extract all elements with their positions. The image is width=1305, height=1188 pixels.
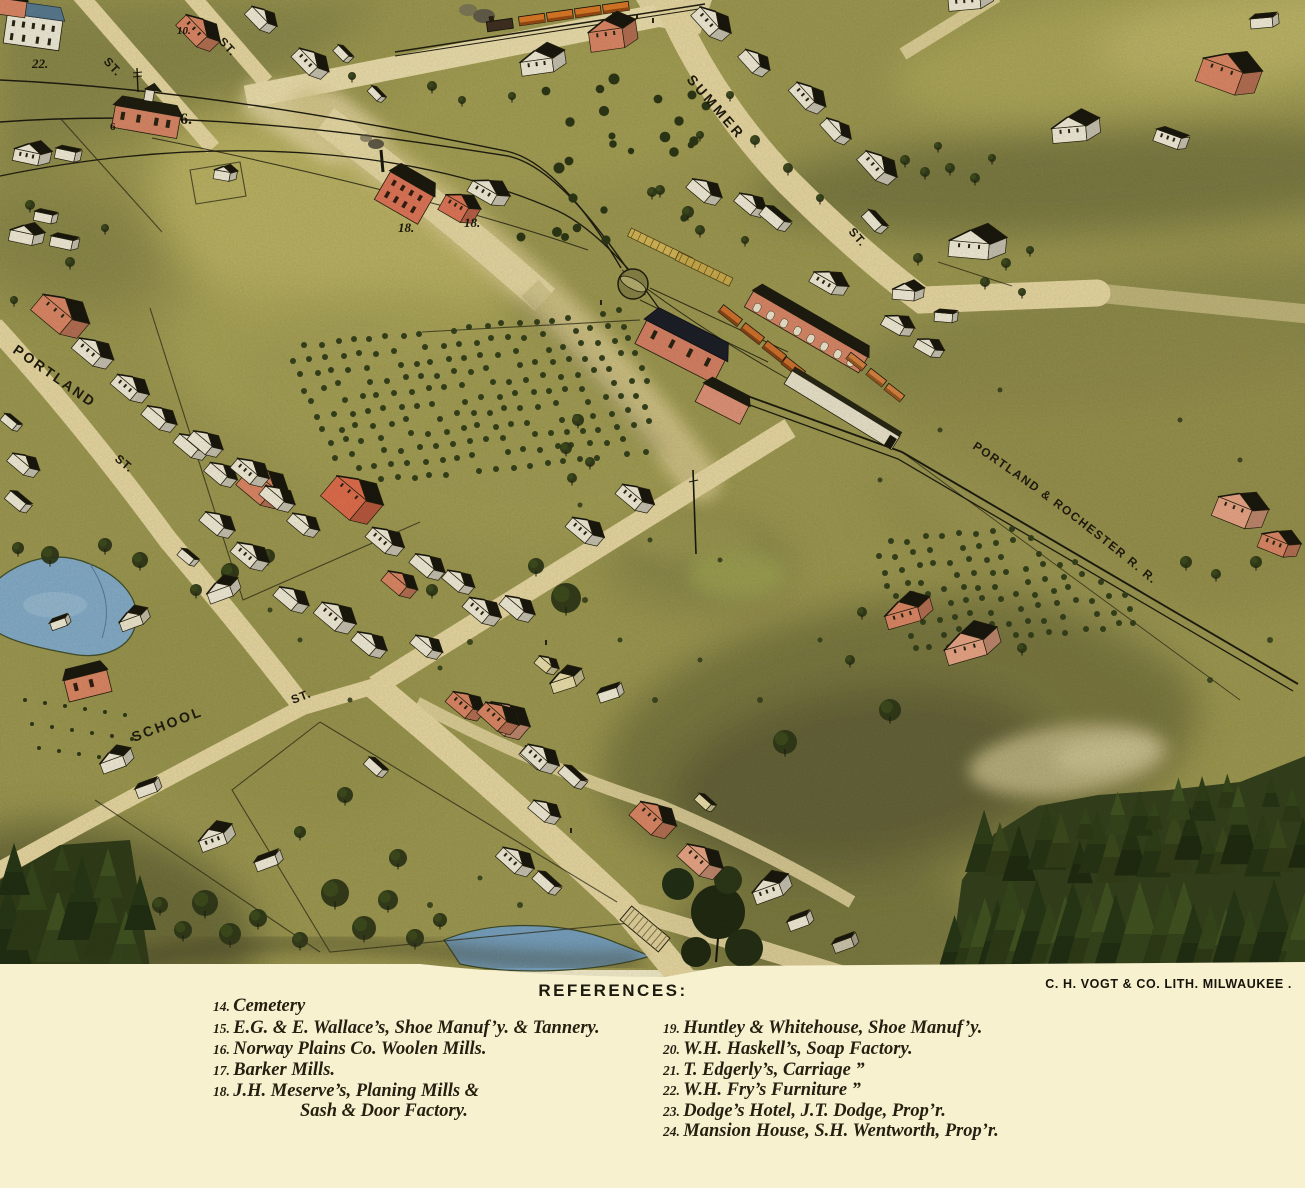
- svg-text:22. W.H. Fry’s Furniture ”: 22. W.H. Fry’s Furniture ”: [662, 1080, 861, 1100]
- svg-text:17. Barker Mills.: 17. Barker Mills.: [213, 1060, 335, 1080]
- svg-text:19. Huntley & Whitehouse, Shoe: 19. Huntley & Whitehouse, Shoe Manuf’y.: [663, 1018, 982, 1038]
- svg-text:Sash & Door Factory.: Sash & Door Factory.: [300, 1101, 468, 1121]
- svg-text:14. Cemetery: 14. Cemetery: [213, 996, 306, 1016]
- svg-text:24. Mansion House, S.H. Wentwo: 24. Mansion House, S.H. Wentworth, Prop’…: [662, 1121, 999, 1141]
- svg-text:20. W.H. Haskell’s, Soap Facto: 20. W.H. Haskell’s, Soap Factory.: [662, 1039, 913, 1059]
- svg-text:15. E.G. & E. Wallace’s, Shoe: 15. E.G. & E. Wallace’s, Shoe Manuf’y. &…: [213, 1018, 600, 1038]
- svg-text:21. T. Edgerly’s, Carriage ”: 21. T. Edgerly’s, Carriage ”: [662, 1060, 865, 1080]
- svg-text:18. J.H. Meserve’s, Planing Mi: 18. J.H. Meserve’s, Planing Mills &: [213, 1081, 480, 1101]
- svg-text:C. H. VOGT & CO. LITH. MILWAUK: C. H. VOGT & CO. LITH. MILWAUKEE .: [1045, 977, 1292, 991]
- svg-text:23. Dodge’s Hotel, J.T. Dodge,: 23. Dodge’s Hotel, J.T. Dodge, Prop’r.: [662, 1101, 946, 1121]
- svg-text:REFERENCES:: REFERENCES:: [538, 981, 687, 1000]
- svg-text:16. Norway Plains Co. Woolen M: 16. Norway Plains Co. Woolen Mills.: [213, 1039, 486, 1059]
